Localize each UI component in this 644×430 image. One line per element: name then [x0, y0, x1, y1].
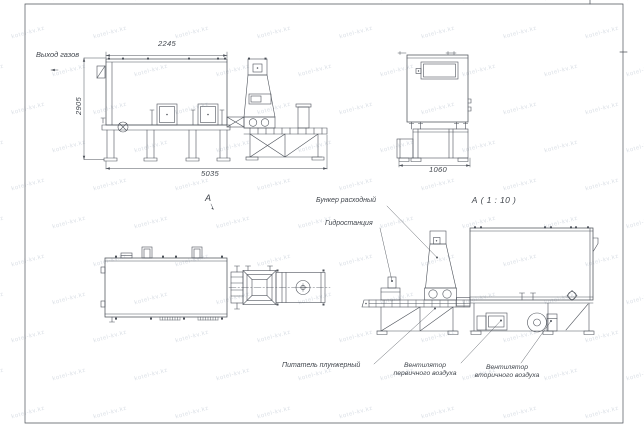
sheet-border [25, 0, 627, 423]
hydraulic-station [381, 277, 400, 300]
secondary-fan-callout: Вентилятор вторичного воздуха [473, 364, 541, 379]
front-view-drawing [397, 52, 471, 168]
supply-hopper [425, 231, 457, 300]
primary-air-fan [477, 313, 507, 330]
valve [118, 122, 128, 132]
hatch-box [157, 104, 177, 125]
plan-view-label: А [200, 194, 216, 202]
primary-fan-callout: Вентилятор первичного воздуха [392, 362, 458, 377]
section-view-title: А ( 1 : 10 ) [465, 196, 523, 204]
dim-length-side-view: 5035 [192, 170, 228, 178]
feeder-conveyor [244, 104, 327, 134]
hopper-callout: Бункер расходный [316, 197, 390, 205]
dim-width-front-view: 1060 [420, 166, 456, 174]
section-view-drawing [362, 206, 598, 364]
gas-outlet-label: Выход газов [36, 51, 96, 59]
leader-lines [374, 206, 552, 364]
air-port [567, 291, 577, 301]
dim-top-side-view: 2245 [149, 40, 185, 48]
feeder-callout: Питатель плунжерный [282, 362, 374, 370]
front-hatch [416, 62, 458, 79]
plan-view-drawing [101, 204, 330, 322]
hopper-tower [244, 59, 275, 128]
plunger-feeder [362, 300, 470, 307]
side-view-drawing [51, 52, 327, 169]
hatch-box [198, 104, 218, 125]
drawing-sheet: kotel-kv.kzkotel-kv.kzkotel-kv.kzkotel-k… [0, 0, 644, 430]
hopper-plan [243, 266, 276, 305]
secondary-air-fan [528, 313, 558, 332]
gas-outlet-stub [97, 66, 105, 78]
hydraulic-callout: Гидростанция [325, 220, 383, 228]
dim-height-side-view: 2905 [75, 91, 83, 121]
